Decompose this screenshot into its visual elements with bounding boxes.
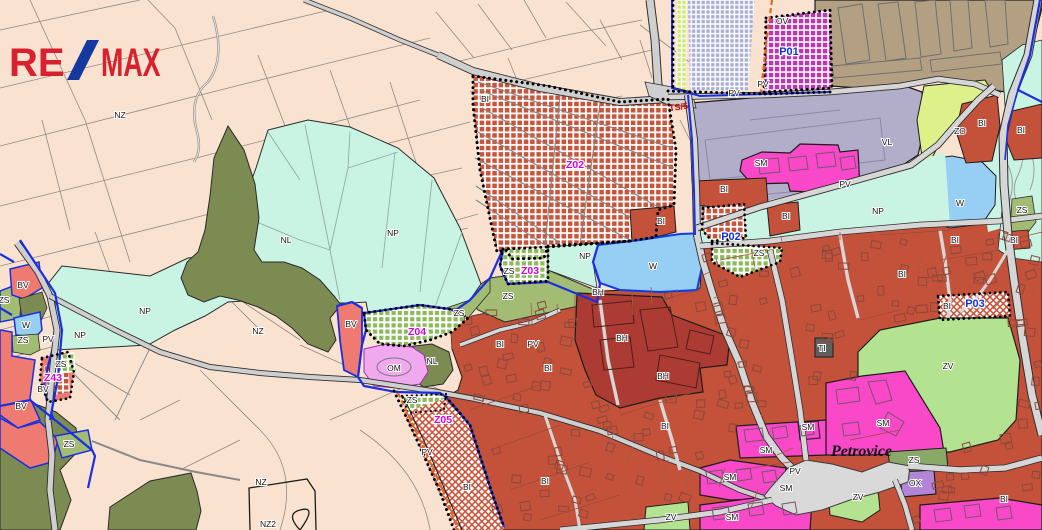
svg-text:SM: SM [724,472,737,482]
svg-text:NZ2: NZ2 [260,519,276,529]
svg-text:PV: PV [728,88,740,98]
svg-text:W: W [22,320,30,330]
svg-text:Z04: Z04 [408,326,426,338]
svg-text:Z05: Z05 [434,414,452,426]
svg-text:BH: BH [657,371,669,381]
svg-text:Z03: Z03 [521,265,539,277]
svg-text:P03: P03 [965,298,985,310]
svg-text:NP: NP [872,206,884,216]
svg-text:ZS: ZS [909,455,920,465]
svg-text:BI: BI [496,339,504,349]
svg-text:BI: BI [541,476,549,486]
svg-text:SM: SM [760,445,773,455]
svg-text:BI: BI [951,235,959,245]
svg-text:NZ: NZ [252,326,263,336]
svg-text:ZS: ZS [454,308,465,318]
svg-text:BI: BI [720,184,728,194]
svg-text:NP: NP [579,251,591,261]
svg-text:PV: PV [789,466,801,476]
svg-text:SM: SM [877,418,890,428]
svg-text:OM: OM [387,363,401,373]
svg-text:BH: BH [592,287,604,297]
svg-text:MAX: MAX [101,41,161,86]
svg-text:NP: NP [74,330,86,340]
svg-text:Z02: Z02 [566,159,584,171]
svg-text:BI: BI [1010,235,1018,245]
svg-text:PV: PV [757,79,769,89]
svg-text:ZV: ZV [853,492,864,502]
svg-text:BI: BI [1000,494,1008,504]
svg-text:BI: BI [544,363,552,373]
svg-text:W: W [956,198,964,208]
svg-text:BI: BI [463,482,471,492]
svg-text:BI: BI [481,94,489,104]
svg-text:PV: PV [527,339,539,349]
svg-text:ZS: ZS [754,248,765,258]
svg-text:BH: BH [616,333,628,343]
svg-text:OV: OV [776,16,789,26]
svg-text:ZS: ZS [504,266,515,276]
svg-text:BI: BI [661,421,669,431]
svg-text:SM: SM [726,512,739,522]
svg-text:P01: P01 [779,46,799,58]
svg-text:W: W [649,261,657,271]
svg-text:ZS: ZS [503,291,514,301]
svg-text:BI: BI [943,301,951,311]
svg-text:BV: BV [17,280,29,290]
svg-text:BI: BI [978,118,986,128]
svg-text:NZ: NZ [114,110,125,120]
svg-text:OX: OX [909,478,922,488]
svg-text:SM: SM [780,483,793,493]
svg-text:ZS: ZS [0,295,10,305]
svg-text:ZV: ZV [943,361,954,371]
svg-text:PV: PV [42,334,54,344]
svg-text:BV: BV [37,384,49,394]
svg-text:ZS: ZS [18,335,29,345]
svg-text:SM: SM [802,422,815,432]
svg-text:Z43: Z43 [44,372,62,384]
svg-text:NZ: NZ [255,477,266,487]
svg-text:Petrovice: Petrovice [830,443,892,460]
svg-text:TI: TI [818,343,826,353]
svg-text:SM: SM [755,158,768,168]
svg-text:RE: RE [9,41,65,85]
svg-text:PV: PV [839,179,851,189]
svg-text:BV: BV [15,401,27,411]
svg-text:ZS: ZS [1017,205,1028,215]
svg-text:P02: P02 [721,231,741,243]
svg-text:BI: BI [657,216,665,226]
svg-text:NL: NL [427,356,438,366]
svg-text:PV: PV [421,447,433,457]
svg-text:BV: BV [345,319,357,329]
svg-text:BI: BI [1017,125,1025,135]
svg-text:ZV: ZV [666,512,677,522]
svg-text:VL: VL [882,137,893,147]
svg-text:ZO: ZO [954,126,966,136]
svg-text:NL: NL [281,235,292,245]
svg-text:BI: BI [782,211,790,221]
svg-text:ZS: ZS [64,439,75,449]
svg-text:NP: NP [387,228,399,238]
svg-text:BI: BI [898,269,906,279]
svg-text:ZS: ZS [56,359,67,369]
svg-text:ZS: ZS [407,395,418,405]
svg-text:NP: NP [139,306,151,316]
